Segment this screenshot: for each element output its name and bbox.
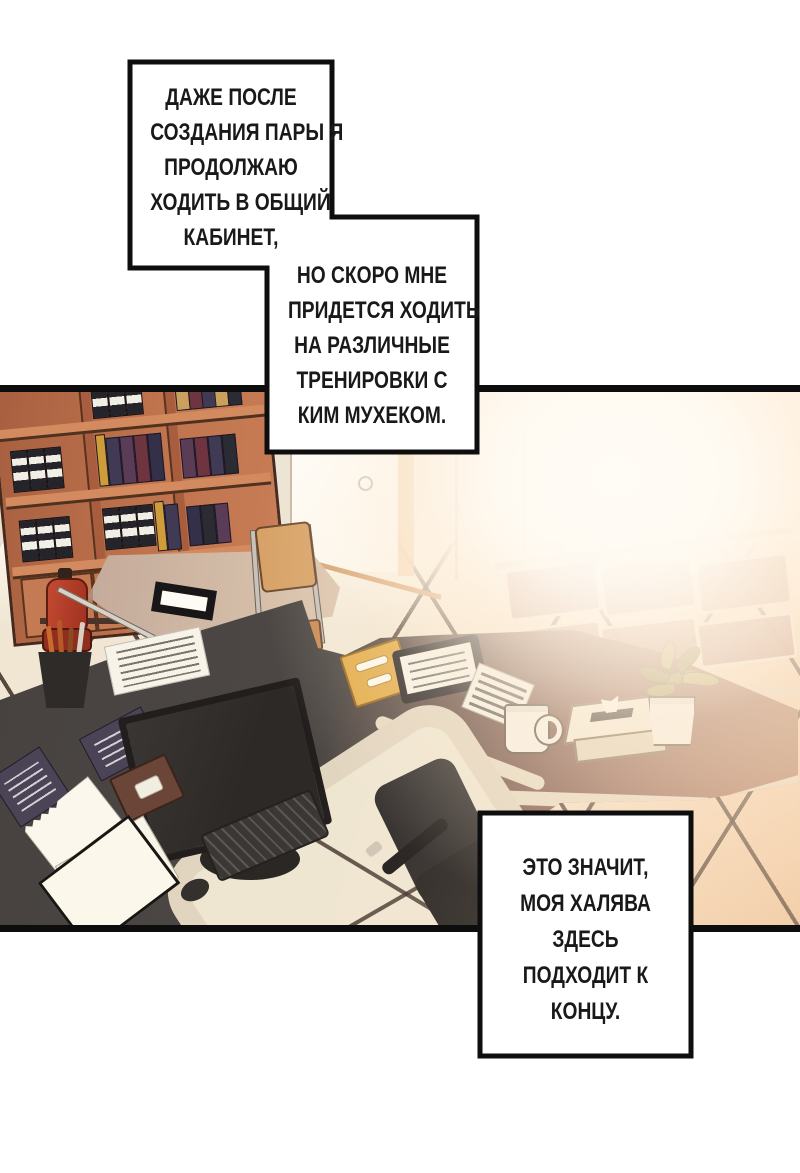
caption-line: ДАЖЕ ПОСЛЕ: [150, 80, 312, 115]
caption-text: ДАЖЕ ПОСЛЕ СОЗДАНИЯ ПАРЫ Я ПРОДОЛЖАЮ ХОД…: [150, 80, 312, 255]
caption-line: ПРИДЕТСЯ ХОДИТЬ: [288, 293, 456, 328]
caption-line: ПРОДОЛЖАЮ: [150, 150, 312, 185]
caption-text: ЭТО ЗНАЧИТ, МОЯ ХАЛЯВА ЗДЕСЬ ПОДХОДИТ К …: [501, 850, 670, 1030]
caption-line: ТРЕНИРОВКИ С: [288, 363, 456, 398]
caption-text: НО СКОРО МНЕ ПРИДЕТСЯ ХОДИТЬ НА РАЗЛИЧНЫ…: [288, 258, 456, 433]
caption-line: НО СКОРО МНЕ: [288, 258, 456, 293]
caption-line: ХОДИТЬ В ОБЩИЙ: [150, 185, 312, 220]
comic-page: ДАЖЕ ПОСЛЕ СОЗДАНИЯ ПАРЫ Я ПРОДОЛЖАЮ ХОД…: [0, 0, 800, 1173]
caption-line: ЗДЕСЬ: [501, 922, 670, 958]
caption-line: СОЗДАНИЯ ПАРЫ Я: [150, 115, 312, 150]
caption-box-1: ДАЖЕ ПОСЛЕ СОЗДАНИЯ ПАРЫ Я ПРОДОЛЖАЮ ХОД…: [130, 80, 332, 255]
caption-box-3: ЭТО ЗНАЧИТ, МОЯ ХАЛЯВА ЗДЕСЬ ПОДХОДИТ К …: [480, 850, 691, 1030]
caption-line: КИМ МУХЕКОМ.: [288, 398, 456, 433]
caption-line: ЭТО ЗНАЧИТ,: [501, 850, 670, 886]
caption-line: МОЯ ХАЛЯВА: [501, 886, 670, 922]
caption-line: КАБИНЕТ,: [150, 220, 312, 255]
caption-line: КОНЦУ.: [501, 994, 670, 1030]
caption-line: ПОДХОДИТ К: [501, 958, 670, 994]
caption-box-2: НО СКОРО МНЕ ПРИДЕТСЯ ХОДИТЬ НА РАЗЛИЧНЫ…: [267, 258, 477, 433]
caption-line: НА РАЗЛИЧНЫЕ: [288, 328, 456, 363]
